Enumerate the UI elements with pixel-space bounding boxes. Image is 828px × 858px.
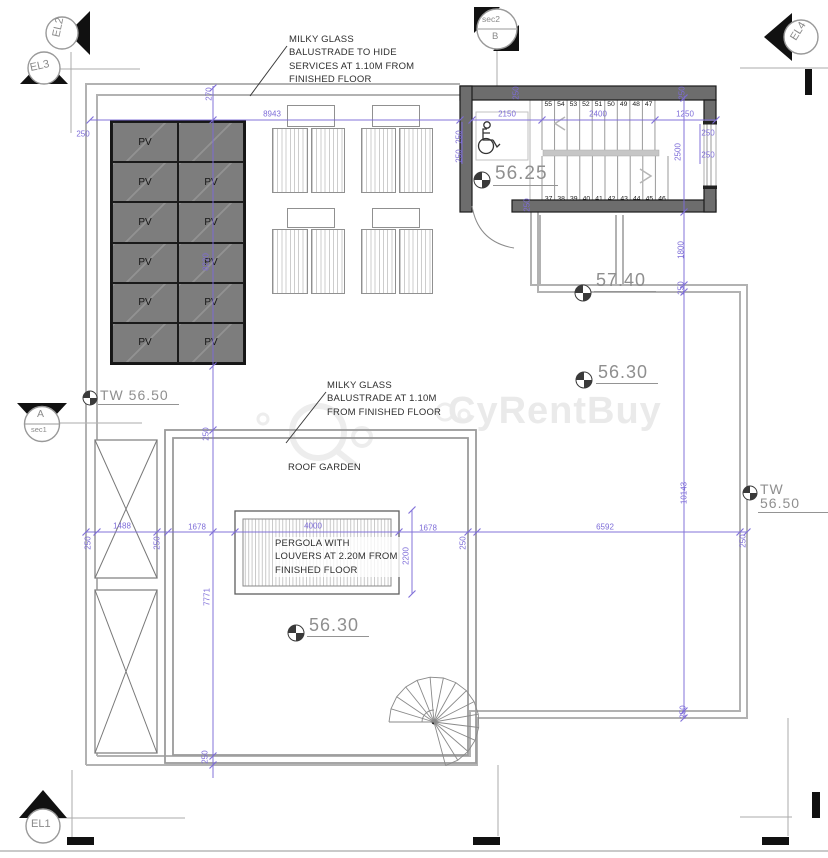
dim-label: 4000 bbox=[304, 522, 322, 531]
stair-step-number: 41 bbox=[595, 196, 603, 203]
level-symbol-quadrant bbox=[288, 625, 296, 633]
dim-label: 250 bbox=[677, 281, 686, 295]
roof-garden-border bbox=[165, 430, 476, 763]
level-upper-terrace: 57.40 bbox=[594, 271, 656, 292]
stair-step-number: 46 bbox=[658, 196, 666, 203]
stair-step-number: 43 bbox=[620, 196, 628, 203]
note-balustrade-garden: MILKY GLASS BALUSTRADE AT 1.10M FROM FIN… bbox=[327, 379, 441, 419]
dim-label: 7771 bbox=[203, 588, 212, 606]
stair-step-number: 50 bbox=[607, 101, 615, 108]
dim-label: 1678 bbox=[188, 523, 206, 532]
stair-landing-edge bbox=[543, 150, 659, 156]
note-leader-lines bbox=[250, 46, 326, 443]
section-a-bottom-label: sec1 bbox=[31, 426, 47, 434]
dim-label: 250 bbox=[523, 198, 532, 212]
note-pergola: PERGOLA WITH LOUVERS AT 2.20M FROM FINIS… bbox=[273, 537, 400, 577]
x-braced-box bbox=[95, 440, 157, 753]
stair-step-number: 48 bbox=[632, 101, 640, 108]
level-symbol-quadrant bbox=[750, 493, 757, 500]
stair-step-number: 38 bbox=[557, 196, 565, 203]
level-symbol-quadrant bbox=[296, 633, 304, 641]
dim-label: 270 bbox=[205, 87, 214, 101]
door-swing-arc bbox=[472, 206, 514, 248]
dim-label: 250 bbox=[84, 536, 93, 550]
dim-label: 10143 bbox=[680, 481, 689, 504]
section-a-top-label: A bbox=[37, 409, 44, 420]
note-balustrade-services: MILKY GLASS BALUSTRADE TO HIDE SERVICES … bbox=[289, 33, 414, 87]
level-tw-left: TW 56.50 bbox=[98, 388, 179, 405]
stair-step-number: 44 bbox=[633, 196, 641, 203]
level-symbol-quadrant bbox=[584, 380, 592, 388]
stair-step-number: 47 bbox=[645, 101, 653, 108]
dim-label: 250 bbox=[201, 750, 210, 764]
dim-label: 250 bbox=[679, 705, 688, 719]
dim-label: 250 bbox=[455, 149, 464, 163]
note-roof-garden: ROOF GARDEN bbox=[288, 461, 361, 474]
dim-label: 250 bbox=[202, 427, 211, 441]
dim-label: 1488 bbox=[113, 522, 131, 531]
stair-step-number: 42 bbox=[608, 196, 616, 203]
roof-plan-drawing: CyRentBuy PVPVPVPVPVPVPVPVPVPVPV bbox=[0, 0, 828, 858]
level-symbol-quadrant bbox=[90, 398, 97, 405]
level-symbol-quadrant bbox=[575, 285, 583, 293]
dim-label: 2200 bbox=[402, 547, 411, 565]
dim-label: 250 bbox=[512, 86, 521, 100]
level-symbol-quadrant bbox=[583, 293, 591, 301]
dim-label: 250 bbox=[701, 151, 715, 160]
stair-step-number: 45 bbox=[646, 196, 654, 203]
level-right-roof: 56.30 bbox=[596, 363, 658, 384]
level-roof-garden: 56.30 bbox=[307, 616, 369, 637]
level-symbol-quadrant bbox=[83, 391, 90, 398]
stair-step-number: 37 bbox=[545, 196, 553, 203]
stair-step-number: 52 bbox=[582, 101, 590, 108]
level-symbol-quadrant bbox=[576, 372, 584, 380]
stair-step-number: 40 bbox=[583, 196, 591, 203]
dim-label: 250 bbox=[678, 86, 687, 100]
dim-label: 1250 bbox=[676, 110, 694, 119]
dim-label: 8220 bbox=[202, 253, 211, 271]
stair-step-number: 55 bbox=[545, 101, 553, 108]
stair-step-number: 39 bbox=[570, 196, 578, 203]
section-b-bottom-label: B bbox=[492, 32, 498, 42]
dim-label: 250 bbox=[76, 130, 90, 139]
dim-label: 250 bbox=[459, 536, 468, 550]
level-tw-right: TW 56.50 bbox=[758, 482, 828, 513]
spiral-staircase bbox=[389, 677, 479, 765]
dim-label: 2400 bbox=[589, 110, 607, 119]
level-symbol-quadrant bbox=[743, 486, 750, 493]
dim-label: 250 bbox=[455, 130, 464, 144]
stair-step-number: 49 bbox=[620, 101, 628, 108]
dim-label: 1800 bbox=[677, 241, 686, 259]
stair-step-number: 54 bbox=[557, 101, 565, 108]
plan-linework: 8943270250215024001250250250250250250025… bbox=[0, 0, 828, 858]
dim-label: 250 bbox=[701, 129, 715, 138]
level-stair-landing: 56.25 bbox=[493, 164, 558, 186]
stair-step-number: 51 bbox=[595, 101, 603, 108]
dim-label: 2150 bbox=[498, 110, 516, 119]
dim-label: 250 bbox=[153, 536, 162, 550]
dim-label: 6592 bbox=[596, 523, 614, 532]
dim-label: 2500 bbox=[674, 143, 683, 161]
dim-label: 250 bbox=[739, 534, 748, 548]
section-b-top-label: sec2 bbox=[482, 15, 500, 24]
el1-marker-label: EL1 bbox=[31, 819, 51, 830]
dim-label: 8943 bbox=[263, 110, 281, 119]
stair-step-number: 53 bbox=[570, 101, 578, 108]
dim-label: 1678 bbox=[419, 524, 437, 533]
